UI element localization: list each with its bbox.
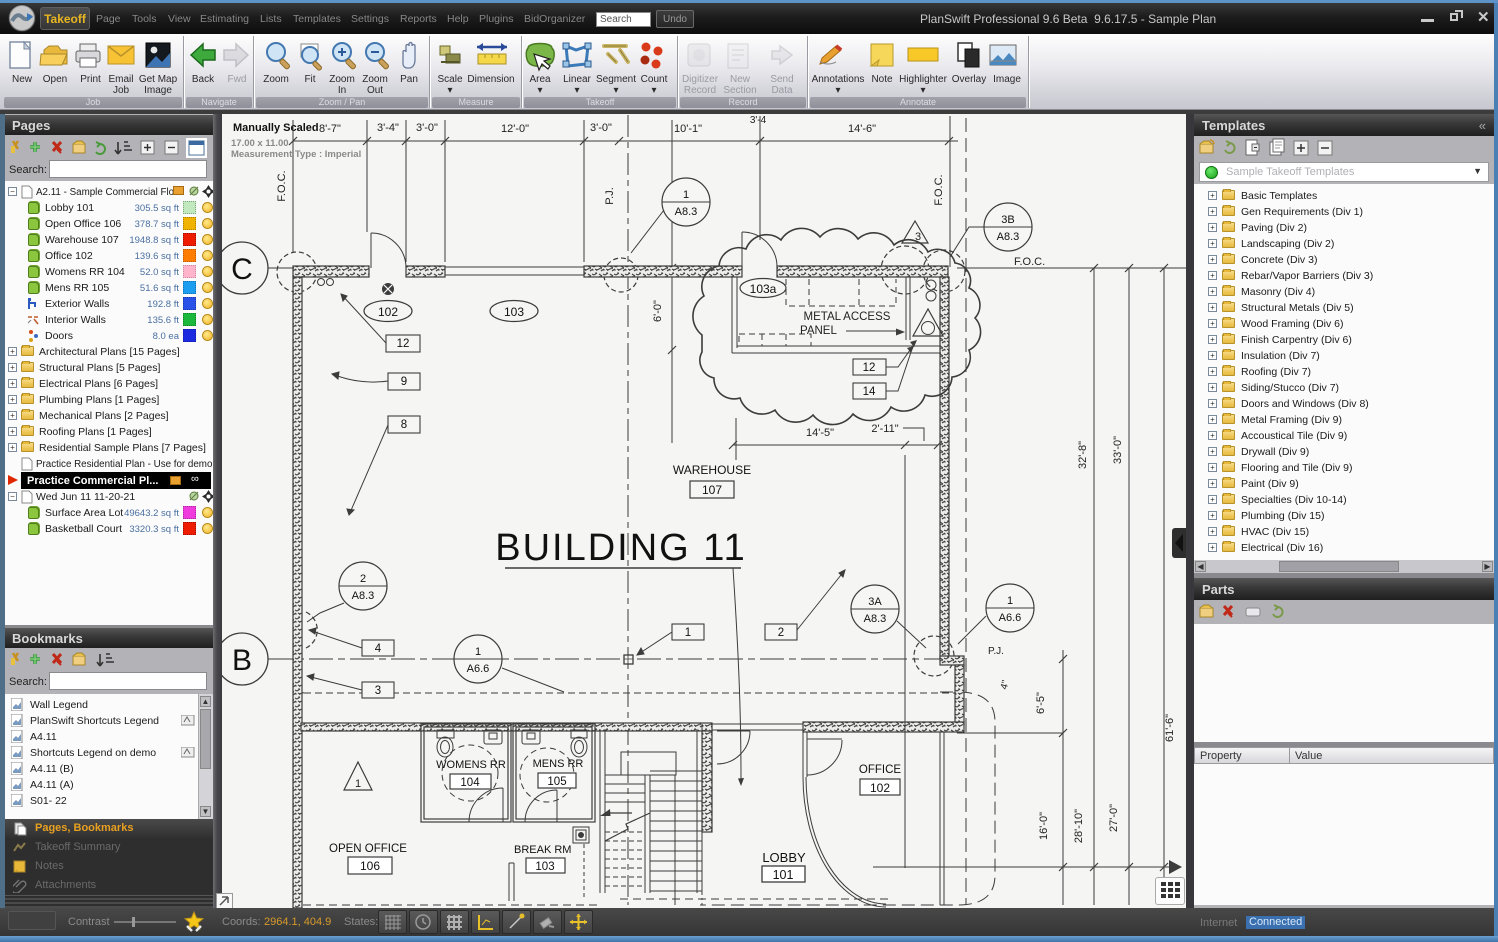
svg-text:101: 101 — [773, 868, 794, 882]
svg-text:6'-0": 6'-0" — [652, 300, 664, 322]
svg-text:2'-11": 2'-11" — [871, 423, 898, 435]
svg-text:3'-4: 3'-4 — [750, 115, 767, 126]
svg-text:107: 107 — [702, 483, 722, 497]
svg-text:A8.3: A8.3 — [997, 231, 1020, 243]
svg-text:BUILDING 11: BUILDING 11 — [495, 527, 746, 569]
svg-text:A8.3: A8.3 — [352, 590, 375, 602]
svg-text:MENS RR: MENS RR — [533, 758, 584, 770]
svg-text:61'-6": 61'-6" — [1164, 714, 1176, 742]
svg-text:8: 8 — [401, 419, 407, 431]
svg-text:Manually Scaled: Manually Scaled — [233, 122, 319, 134]
svg-text:1: 1 — [685, 627, 691, 639]
svg-text:102: 102 — [870, 781, 890, 795]
svg-text:12: 12 — [397, 338, 410, 350]
svg-text:17.00 x 11.00: 17.00 x 11.00 — [231, 138, 289, 149]
svg-text:A6.6: A6.6 — [467, 663, 490, 675]
svg-text:BREAK RM: BREAK RM — [514, 844, 571, 856]
svg-text:3B: 3B — [1001, 214, 1014, 226]
svg-text:9: 9 — [401, 376, 407, 388]
svg-text:A6.6: A6.6 — [999, 612, 1022, 624]
svg-text:P.J.: P.J. — [604, 187, 616, 205]
svg-text:103: 103 — [535, 861, 554, 873]
svg-text:106: 106 — [360, 859, 380, 873]
svg-text:PANEL: PANEL — [800, 325, 837, 337]
svg-text:14'-5": 14'-5" — [806, 427, 834, 439]
svg-text:3'-0": 3'-0" — [590, 122, 612, 134]
svg-text:1: 1 — [355, 778, 361, 790]
svg-text:WOMENS RR: WOMENS RR — [436, 759, 506, 771]
svg-text:F.O.C.: F.O.C. — [1014, 256, 1045, 268]
svg-text:14: 14 — [863, 386, 876, 398]
svg-text:Measurement Type : Imperial: Measurement Type : Imperial — [231, 149, 361, 160]
svg-text:2: 2 — [778, 627, 784, 639]
svg-text:F.O.C.: F.O.C. — [276, 170, 288, 201]
svg-text:6'-5": 6'-5" — [1035, 692, 1047, 714]
svg-text:A8.3: A8.3 — [864, 613, 887, 625]
svg-text:B: B — [232, 644, 252, 677]
svg-text:104: 104 — [460, 777, 480, 789]
svg-text:P.J.: P.J. — [988, 646, 1004, 657]
svg-text:1: 1 — [475, 646, 481, 658]
svg-text:LOBBY: LOBBY — [762, 850, 806, 865]
svg-text:12: 12 — [863, 362, 876, 374]
svg-text:16'-0": 16'-0" — [1038, 812, 1050, 840]
svg-text:8'-7": 8'-7" — [319, 123, 341, 135]
svg-text:10'-1": 10'-1" — [674, 123, 702, 135]
svg-text:102: 102 — [378, 305, 398, 319]
svg-text:3'-4": 3'-4" — [377, 122, 399, 134]
svg-text:14'-6": 14'-6" — [848, 123, 876, 135]
svg-text:103: 103 — [504, 305, 524, 319]
svg-text:3: 3 — [375, 685, 381, 697]
svg-text:32'-8": 32'-8" — [1077, 441, 1089, 469]
svg-text:105: 105 — [547, 776, 566, 788]
svg-text:OFFICE: OFFICE — [859, 764, 901, 776]
svg-text:103a: 103a — [750, 282, 777, 296]
svg-text:1: 1 — [1007, 595, 1013, 607]
svg-text:4": 4" — [999, 679, 1012, 691]
svg-text:METAL ACCESS: METAL ACCESS — [804, 311, 891, 323]
svg-text:3'-0": 3'-0" — [416, 122, 438, 134]
svg-text:C: C — [231, 253, 253, 286]
svg-text:F.O.C.: F.O.C. — [933, 174, 945, 205]
svg-text:27'-0": 27'-0" — [1108, 804, 1120, 832]
svg-text:WAREHOUSE: WAREHOUSE — [673, 463, 751, 477]
svg-text:12'-0": 12'-0" — [501, 123, 529, 135]
svg-text:2: 2 — [360, 573, 366, 585]
svg-text:A8.3: A8.3 — [675, 206, 698, 218]
svg-text:OPEN OFFICE: OPEN OFFICE — [329, 843, 407, 855]
svg-text:1: 1 — [683, 189, 689, 201]
svg-text:3A: 3A — [868, 596, 882, 608]
svg-text:4: 4 — [375, 643, 382, 655]
svg-text:33'-0": 33'-0" — [1112, 436, 1124, 464]
svg-text:28'-10": 28'-10" — [1073, 809, 1085, 843]
